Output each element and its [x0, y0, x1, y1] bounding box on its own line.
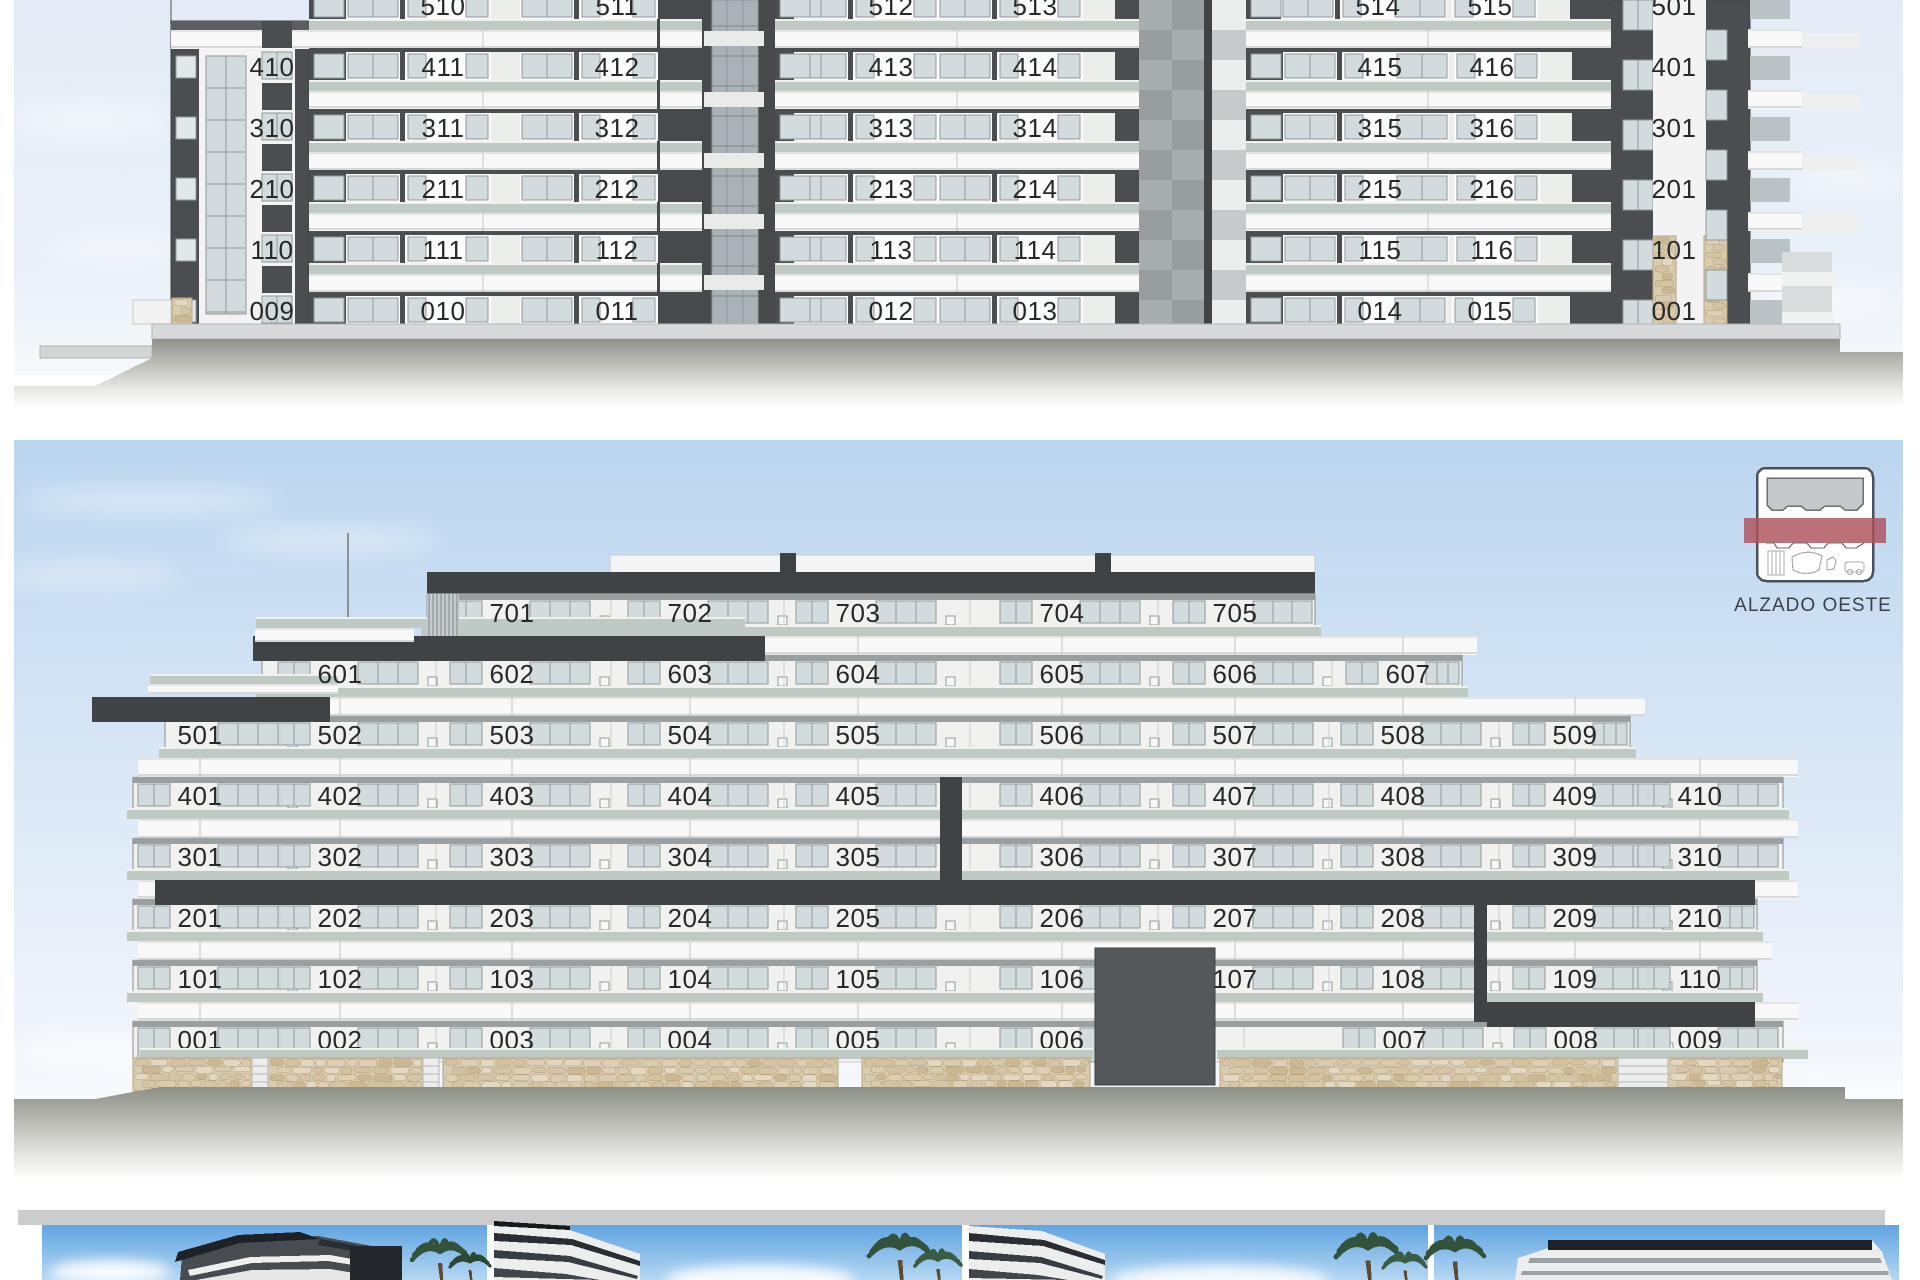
svg-text:510: 510	[421, 0, 466, 21]
svg-text:215: 215	[1358, 174, 1403, 204]
svg-text:514: 514	[1356, 0, 1401, 21]
svg-text:310: 310	[250, 113, 295, 143]
svg-text:113: 113	[870, 235, 913, 265]
svg-text:313: 313	[869, 113, 914, 143]
svg-text:411: 411	[422, 52, 465, 82]
svg-text:512: 512	[869, 0, 914, 21]
svg-text:103: 103	[490, 964, 535, 994]
svg-text:508: 508	[1381, 720, 1426, 750]
svg-text:207: 207	[1213, 903, 1258, 933]
svg-text:603: 603	[668, 659, 713, 689]
svg-text:604: 604	[836, 659, 881, 689]
svg-text:305: 305	[836, 842, 881, 872]
svg-text:410: 410	[250, 52, 295, 82]
svg-text:216: 216	[1470, 174, 1515, 204]
svg-text:408: 408	[1381, 781, 1426, 811]
svg-text:701: 701	[490, 598, 535, 628]
svg-text:507: 507	[1213, 720, 1258, 750]
svg-text:301: 301	[178, 842, 223, 872]
svg-text:012: 012	[869, 296, 914, 326]
svg-text:316: 316	[1470, 113, 1515, 143]
svg-text:403: 403	[490, 781, 535, 811]
svg-text:401: 401	[1652, 52, 1697, 82]
svg-text:302: 302	[318, 842, 363, 872]
svg-text:210: 210	[250, 174, 295, 204]
svg-text:101: 101	[1652, 235, 1697, 265]
svg-text:115: 115	[1359, 235, 1402, 265]
svg-text:401: 401	[178, 781, 223, 811]
svg-text:109: 109	[1553, 964, 1598, 994]
svg-text:404: 404	[668, 781, 713, 811]
svg-text:010: 010	[421, 296, 466, 326]
svg-text:402: 402	[318, 781, 363, 811]
svg-text:314: 314	[1013, 113, 1058, 143]
svg-text:415: 415	[1358, 52, 1403, 82]
svg-text:203: 203	[490, 903, 535, 933]
svg-text:504: 504	[668, 720, 713, 750]
svg-text:015: 015	[1468, 296, 1513, 326]
svg-text:206: 206	[1040, 903, 1085, 933]
svg-text:009: 009	[250, 296, 295, 326]
svg-text:213: 213	[869, 174, 914, 204]
svg-text:505: 505	[836, 720, 881, 750]
svg-text:509: 509	[1553, 720, 1598, 750]
svg-text:209: 209	[1553, 903, 1598, 933]
svg-text:506: 506	[1040, 720, 1085, 750]
svg-text:312: 312	[595, 113, 640, 143]
svg-text:201: 201	[178, 903, 223, 933]
svg-text:416: 416	[1470, 52, 1515, 82]
svg-text:703: 703	[836, 598, 881, 628]
svg-text:304: 304	[668, 842, 713, 872]
svg-text:202: 202	[318, 903, 363, 933]
svg-text:412: 412	[595, 52, 640, 82]
svg-text:602: 602	[490, 659, 535, 689]
svg-text:001: 001	[1652, 296, 1697, 326]
svg-text:405: 405	[836, 781, 881, 811]
svg-text:406: 406	[1040, 781, 1085, 811]
svg-text:014: 014	[1358, 296, 1403, 326]
svg-text:607: 607	[1386, 659, 1431, 689]
svg-text:501: 501	[178, 720, 223, 750]
svg-text:ALZADO OESTE: ALZADO OESTE	[1734, 595, 1892, 616]
svg-text:214: 214	[1013, 174, 1058, 204]
svg-text:410: 410	[1678, 781, 1723, 811]
svg-text:606: 606	[1213, 659, 1258, 689]
svg-text:013: 013	[1013, 296, 1058, 326]
svg-text:605: 605	[1040, 659, 1085, 689]
svg-text:413: 413	[869, 52, 914, 82]
svg-text:307: 307	[1213, 842, 1258, 872]
svg-text:702: 702	[668, 598, 713, 628]
svg-text:511: 511	[596, 0, 639, 21]
svg-text:515: 515	[1468, 0, 1513, 21]
svg-text:208: 208	[1381, 903, 1426, 933]
svg-text:110: 110	[251, 235, 294, 265]
svg-text:205: 205	[836, 903, 881, 933]
svg-text:112: 112	[596, 235, 639, 265]
svg-text:704: 704	[1040, 598, 1085, 628]
svg-text:108: 108	[1381, 964, 1426, 994]
svg-text:310: 310	[1678, 842, 1723, 872]
svg-text:308: 308	[1381, 842, 1426, 872]
svg-text:212: 212	[595, 174, 640, 204]
svg-text:315: 315	[1358, 113, 1403, 143]
svg-text:105: 105	[836, 964, 881, 994]
svg-text:501: 501	[1652, 0, 1697, 21]
svg-text:309: 309	[1553, 842, 1598, 872]
svg-text:513: 513	[1013, 0, 1058, 21]
svg-text:116: 116	[1471, 235, 1514, 265]
svg-text:303: 303	[490, 842, 535, 872]
svg-text:114: 114	[1014, 235, 1057, 265]
svg-text:409: 409	[1553, 781, 1598, 811]
svg-text:301: 301	[1652, 113, 1697, 143]
svg-text:503: 503	[490, 720, 535, 750]
svg-text:210: 210	[1678, 903, 1723, 933]
svg-text:104: 104	[668, 964, 713, 994]
svg-text:201: 201	[1652, 174, 1697, 204]
svg-text:110: 110	[1679, 964, 1722, 994]
svg-text:106: 106	[1040, 964, 1085, 994]
svg-text:414: 414	[1013, 52, 1058, 82]
svg-text:311: 311	[422, 113, 465, 143]
svg-text:204: 204	[668, 903, 713, 933]
svg-text:407: 407	[1213, 781, 1258, 811]
svg-text:211: 211	[422, 174, 465, 204]
svg-text:306: 306	[1040, 842, 1085, 872]
svg-text:601: 601	[318, 659, 363, 689]
svg-text:502: 502	[318, 720, 363, 750]
svg-text:101: 101	[178, 964, 223, 994]
svg-text:111: 111	[422, 235, 463, 265]
svg-text:705: 705	[1213, 598, 1258, 628]
svg-text:107: 107	[1213, 964, 1258, 994]
svg-text:102: 102	[318, 964, 363, 994]
svg-text:011: 011	[596, 296, 639, 326]
